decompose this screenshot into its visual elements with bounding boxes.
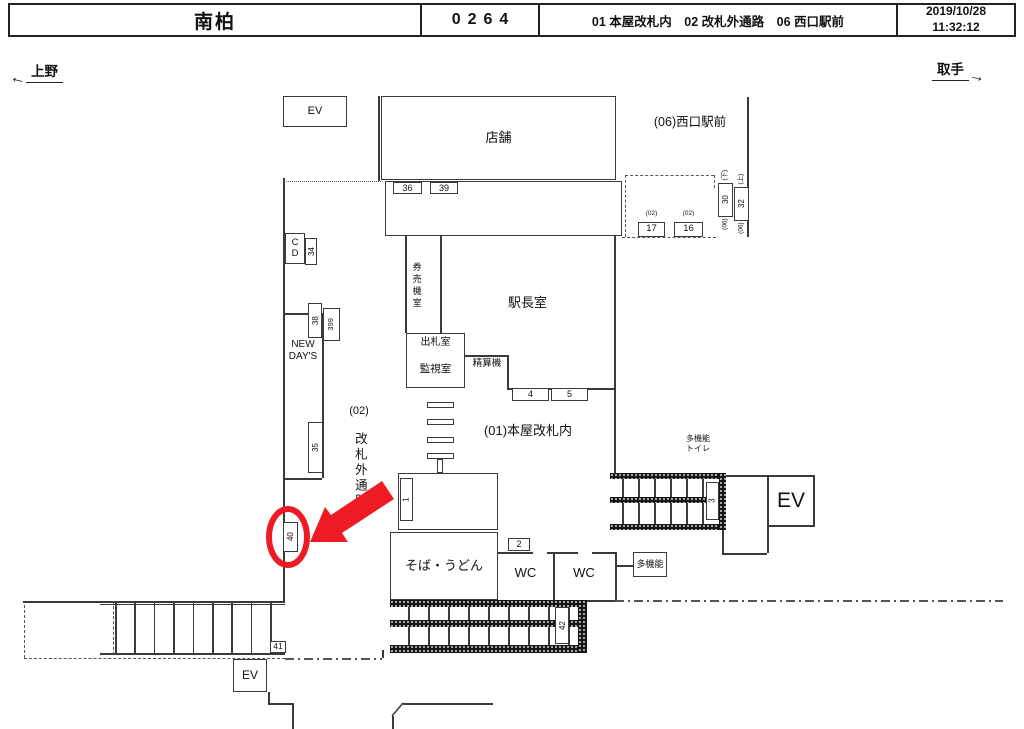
bottom-stair-treads (488, 627, 490, 645)
newdays-wall (283, 478, 322, 480)
bl-dashed-wall (113, 601, 114, 655)
store-left-wall (378, 96, 380, 181)
multi-function-toilet-label: 多機能 トイレ (680, 432, 716, 456)
soba-udon-box: そば・うどん (390, 532, 498, 600)
fare-adjust-label: 精算機 (467, 357, 507, 370)
escalator-hatch (719, 473, 726, 530)
bottom-stair-treads (468, 627, 470, 645)
box-17: 17 (638, 222, 665, 237)
bl-stair-treads (193, 601, 195, 653)
box-42: 42 (555, 607, 569, 644)
bl-dashed-wall (24, 605, 25, 658)
gate-bar (427, 419, 454, 425)
inside-gate-area-label: (01)本屋改札内 (468, 423, 588, 439)
outside-gate-area-prefix: (02) (342, 405, 376, 419)
newdays-label: NEW DAY'S (280, 337, 326, 365)
step-line (382, 650, 384, 658)
wc-left-label: WC (498, 562, 553, 584)
escalator-hatch (610, 524, 726, 530)
multi-function-link (615, 565, 633, 567)
box-5: 5 (551, 388, 588, 401)
gate-bar (427, 437, 454, 443)
box-41: 41 (270, 641, 286, 653)
ev-upper-box: EV (283, 96, 347, 127)
escalator-treads (638, 503, 640, 524)
newdays-wall (283, 313, 308, 315)
ev-landing-wall (726, 475, 767, 477)
floorplan-canvas: EV店舗3639C D3438399354017(02)16(02)30(下)(… (0, 0, 1024, 729)
bottom-stair-treads (548, 607, 550, 620)
outside-gate-area-label: 改札外通路 (350, 421, 368, 521)
box-2: 2 (508, 538, 530, 551)
monitor-room-label: 監視室 (406, 362, 465, 377)
escalator-hatch (610, 473, 726, 479)
dotted-wall (283, 181, 381, 182)
bottom-stair-hatch (390, 620, 579, 627)
bottom-stair-treads (428, 627, 430, 645)
escalator-treads (622, 479, 624, 497)
box-35: 35 (308, 422, 323, 473)
bottom-stair-hatch (390, 600, 587, 607)
west-dashed-area (625, 175, 714, 176)
boundary-dashdot (285, 658, 382, 660)
stationmaster-room-label: 駅長室 (470, 295, 585, 311)
bottom-stair-treads (448, 627, 450, 645)
platform-corner-line (392, 703, 403, 716)
bottom-stair-treads (548, 627, 550, 645)
box-4: 4 (512, 388, 549, 401)
west-dashed-area (622, 237, 716, 238)
ev-landing-wall (722, 530, 724, 553)
box-17-sup-label: (02) (635, 208, 668, 221)
box-16-sup-label: (02) (671, 208, 706, 221)
gate-bar (427, 402, 454, 408)
west-dashed-area (625, 175, 626, 237)
center-stair-box (398, 473, 498, 530)
bottom-stair-treads (428, 607, 430, 620)
box-16: 16 (674, 222, 703, 237)
box-34: 34 (305, 238, 317, 265)
ticket-machine-room-wall (440, 236, 442, 333)
ev-landing-wall (767, 527, 769, 553)
box-30: 30 (718, 183, 733, 217)
wc-right-wall (615, 552, 617, 600)
escalator-treads (670, 503, 672, 524)
bottom-stair-treads (448, 607, 450, 620)
fare-adjust-wall (507, 355, 509, 388)
wc-bottom-wall (587, 600, 615, 602)
escalator-treads (670, 479, 672, 497)
box-40: 40 (283, 522, 298, 552)
ev-lower-step (292, 703, 294, 729)
concourse-right-wall (614, 236, 616, 473)
cd-box: C D (285, 233, 305, 264)
escalator-treads (622, 503, 624, 524)
multi-function-box: 多機能 (633, 552, 667, 577)
box-36: 36 (393, 182, 422, 194)
bl-stair-treads (134, 601, 136, 653)
platform-edge (392, 716, 394, 729)
bottom-stair-treads (508, 607, 510, 620)
escalator-treads (638, 479, 640, 497)
bl-stair-treads (231, 601, 233, 653)
ticket-machine-room-wall (405, 236, 407, 333)
box-38: 38 (308, 303, 322, 338)
wc-right-label: WC (553, 562, 615, 584)
escalator-treads (654, 479, 656, 497)
bl-stair-treads (154, 601, 156, 653)
bottom-stair-treads (488, 607, 490, 620)
bl-stair-treads (173, 601, 175, 653)
escalator-treads (702, 503, 704, 524)
escalator-treads (702, 479, 704, 497)
ev-lower-box: EV (233, 659, 267, 692)
bottom-stair-hatch (390, 645, 579, 653)
box-3: 3 (706, 482, 719, 520)
box-1: 1 (400, 478, 413, 521)
bl-stair-bottom (100, 653, 285, 655)
ev-landing-wall (722, 553, 767, 555)
box-32: 32 (734, 187, 749, 221)
escalator-treads (686, 479, 688, 497)
ev-lower-step (268, 703, 292, 705)
ev-right-box: EV (767, 475, 815, 527)
box-32-sub-label: (06) (731, 222, 752, 235)
bl-stair-treads (251, 601, 253, 653)
wc-top-wall (547, 552, 578, 554)
platform-edge (403, 703, 493, 705)
escalator-treads (654, 503, 656, 524)
ticket-machine-room-label: 券売機室 (408, 247, 424, 325)
bottom-stair-treads (468, 607, 470, 620)
store-box: 店舗 (381, 96, 616, 180)
ticket-window-label: 出札室 (406, 336, 465, 350)
box-39: 39 (430, 182, 458, 194)
ev-lower-step (268, 692, 270, 703)
bottom-stair-treads (508, 627, 510, 645)
bl-stair-treads (212, 601, 214, 653)
wc-top-wall (592, 552, 615, 554)
bottom-stair-treads (528, 607, 530, 620)
bottom-stair-hatch (578, 600, 587, 653)
bottom-stair-treads (528, 627, 530, 645)
bl-stair-treads (115, 601, 117, 653)
boundary-dashdot (615, 600, 1003, 602)
station-floorplan-page: 南柏 0264 01 本屋改札内 02 改札外通路 06 西口駅前 2019/1… (0, 0, 1024, 729)
west-exit-area-label: (06)西口駅前 (640, 115, 740, 131)
box-32-sup-label: (上) (731, 173, 752, 186)
bottom-stair-treads (408, 627, 410, 645)
gate-post (437, 459, 443, 473)
escalator-treads (686, 503, 688, 524)
bottom-stair-treads (408, 607, 410, 620)
escalator-hatch (610, 497, 706, 503)
wc-top-wall (498, 552, 533, 554)
